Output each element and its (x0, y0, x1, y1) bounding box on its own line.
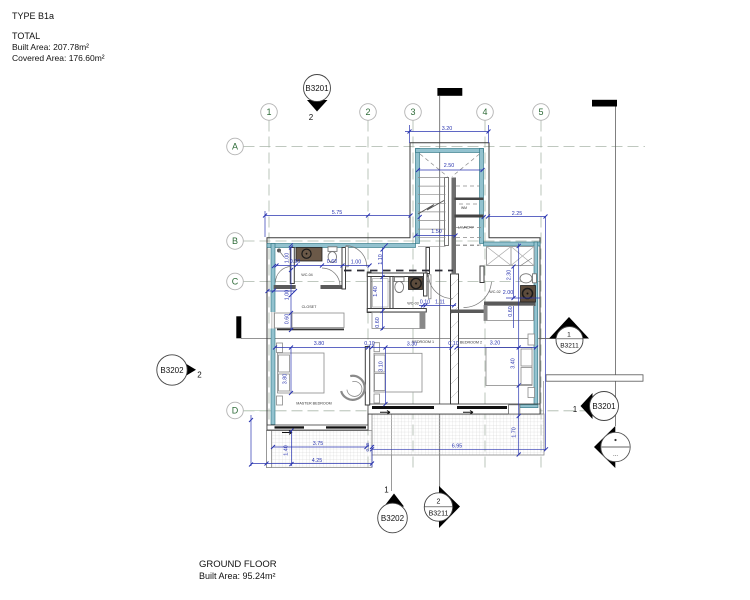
svg-text:2.50: 2.50 (444, 163, 455, 169)
svg-text:1: 1 (573, 405, 578, 414)
svg-text:3.10: 3.10 (378, 361, 384, 372)
svg-text:2.25: 2.25 (512, 211, 523, 217)
svg-text:0.25: 0.25 (365, 442, 370, 451)
svg-text:B3202: B3202 (381, 514, 405, 523)
svg-text:2: 2 (365, 107, 370, 117)
svg-text:2.30: 2.30 (507, 270, 513, 281)
svg-text:TYPE B1a: TYPE B1a (12, 11, 54, 21)
svg-text:Covered Area: 176.60m²: Covered Area: 176.60m² (12, 53, 105, 63)
svg-text:3.40: 3.40 (511, 358, 517, 369)
svg-text:TOTAL: TOTAL (12, 31, 40, 41)
svg-text:BEDROOM 2: BEDROOM 2 (460, 341, 482, 345)
svg-text:1.00: 1.00 (285, 290, 291, 301)
svg-text:0.60: 0.60 (508, 306, 514, 317)
svg-text:1: 1 (384, 486, 389, 495)
svg-text:B3202: B3202 (160, 366, 184, 375)
svg-text:0.90: 0.90 (290, 259, 301, 265)
svg-text:6.95: 6.95 (452, 444, 463, 450)
svg-text:B: B (232, 236, 238, 246)
svg-text:B3211: B3211 (429, 511, 449, 518)
svg-text:3.75: 3.75 (313, 441, 324, 447)
svg-text:3.30: 3.30 (407, 341, 418, 347)
svg-text:WC-03: WC-03 (407, 302, 418, 306)
svg-text:4.25: 4.25 (312, 458, 323, 464)
svg-text:1.50: 1.50 (431, 229, 442, 235)
svg-text:1.70: 1.70 (512, 427, 518, 438)
svg-text:GROUND FLOOR: GROUND FLOOR (199, 559, 277, 570)
svg-text:1.10: 1.10 (378, 254, 384, 265)
svg-text:0.60: 0.60 (327, 259, 338, 265)
svg-text:1: 1 (567, 332, 571, 339)
svg-text:3.20: 3.20 (442, 126, 453, 132)
svg-text:1: 1 (266, 107, 271, 117)
svg-text:MASTER BEDROOM: MASTER BEDROOM (296, 402, 331, 406)
svg-text:1.40: 1.40 (373, 286, 379, 297)
svg-text:LAUNDRY: LAUNDRY (458, 226, 475, 230)
svg-text:B3201: B3201 (592, 402, 616, 411)
svg-text:0.60: 0.60 (285, 314, 291, 325)
svg-text:3.80: 3.80 (314, 341, 325, 347)
svg-text:CLOSET: CLOSET (302, 305, 318, 309)
svg-text:WC-04: WC-04 (301, 273, 312, 277)
svg-text:5.75: 5.75 (332, 210, 343, 216)
svg-text:C: C (232, 277, 239, 287)
svg-text:1.40: 1.40 (284, 445, 290, 456)
svg-text:1.11: 1.11 (435, 299, 445, 305)
svg-text:2.00: 2.00 (503, 290, 514, 296)
svg-text:0.60: 0.60 (375, 317, 381, 328)
svg-text:3.80: 3.80 (283, 374, 289, 385)
svg-text:A: A (232, 142, 238, 152)
svg-text:3: 3 (410, 107, 415, 117)
svg-text:WC-02: WC-02 (489, 290, 500, 294)
svg-text:0.10: 0.10 (420, 299, 431, 305)
svg-text:B3201: B3201 (305, 84, 329, 93)
svg-text:2: 2 (309, 113, 314, 122)
svg-text:B3211: B3211 (560, 343, 579, 350)
svg-text:...: ... (613, 452, 618, 458)
svg-text:4: 4 (482, 107, 487, 117)
svg-text:3.20: 3.20 (490, 341, 501, 347)
svg-text:2: 2 (197, 371, 202, 380)
svg-text:0.10: 0.10 (364, 341, 375, 347)
svg-text:1.00: 1.00 (351, 260, 362, 266)
svg-text:5: 5 (538, 107, 543, 117)
svg-text:Built Area: 95.24m²: Built Area: 95.24m² (199, 571, 276, 581)
svg-text:D: D (232, 406, 239, 416)
svg-text:1.00: 1.00 (285, 253, 291, 264)
svg-text:2: 2 (437, 499, 441, 506)
svg-text:Built Area: 207.78m²: Built Area: 207.78m² (12, 42, 89, 52)
svg-text:WM: WM (461, 206, 467, 210)
svg-text:0.10: 0.10 (448, 341, 459, 347)
